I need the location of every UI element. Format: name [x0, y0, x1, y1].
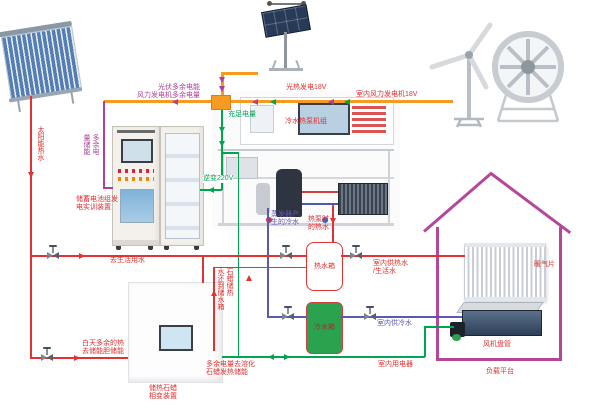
green-bottom-h: [222, 356, 425, 358]
collector-leg: [70, 92, 74, 104]
paraffin-return-v: [213, 267, 215, 351]
label-battery-cabinet: 储蓄电池组发 电实训装置: [76, 196, 122, 212]
paraffin-screen: [159, 325, 193, 351]
tracker-feed-v: [221, 72, 224, 96]
valve-cold-tank-inlet[interactable]: [281, 305, 295, 324]
cabinet-indicators: [118, 169, 154, 173]
bus-arrow-left: [270, 99, 276, 105]
control-cabinet: [112, 126, 160, 246]
valve-day-surplus[interactable]: [40, 346, 54, 365]
wind-tunnel-fan: [495, 34, 561, 121]
green-house-riser: [424, 326, 426, 357]
tracker-arrow-down: [219, 86, 225, 92]
tracker-arrow-down: [219, 77, 225, 83]
fan-coil-unit: [450, 298, 542, 340]
solar-flow-arrow: [28, 172, 34, 178]
battery-cabinet: [160, 126, 204, 246]
tracker-pole: [284, 32, 287, 68]
hp-pipe: [302, 191, 338, 193]
label-surplus-power: 光伏多余电能 风力发电机多余电量: [120, 84, 200, 100]
label-melt-paraffin: 多余电量去溶化 石蜡发热储能: [206, 361, 255, 377]
pv-tracker: [255, 2, 327, 76]
domestic-water-h: [30, 255, 307, 257]
house-floor: [436, 358, 562, 361]
dc-bus-line: [104, 100, 453, 103]
label-heat-pump: 冷水热泵机组: [285, 118, 327, 126]
tracker-sensor: [267, 1, 272, 6]
valve-hot-tank-outlet[interactable]: [349, 244, 363, 263]
bus-junction-box: [211, 95, 231, 110]
label-fan-coil: 风机盘管: [483, 341, 511, 349]
green-arrow-down: [219, 127, 225, 133]
paraffin-return-arrow: [246, 275, 252, 281]
paraffin-power-arrow: [268, 354, 274, 360]
green-inverter-v: [221, 152, 223, 190]
house-power-arrow: [284, 354, 290, 360]
cabinet-screen: [121, 139, 153, 163]
hot-water-tank: 热水箱: [306, 242, 343, 291]
wind-turbine-and-fan: [424, 5, 574, 133]
label-charge: 充足电量: [228, 111, 256, 119]
solar-hot-v: [30, 96, 32, 358]
house-roof-left: [423, 171, 493, 232]
bus-arrow-left: [328, 99, 334, 105]
heatpump-hot-arrow: [330, 218, 336, 224]
paraffin-feed-v: [202, 255, 204, 283]
cold-tank-label: 冷水箱: [314, 324, 335, 332]
label-inverter: 逆变220V: [203, 175, 233, 183]
label-load-platform: 负载平台: [486, 368, 514, 376]
label-surplus-storage: 多余电 量储能: [82, 134, 100, 164]
house-wall-left: [436, 227, 439, 361]
hp-bench-leg: [388, 151, 390, 225]
fan-coil-green-part: [452, 334, 461, 341]
label-evaporator-cold: 蒸发器产 生的冷水: [271, 211, 299, 227]
cabinet-vent: [117, 130, 155, 133]
green-house-h: [424, 326, 454, 328]
bus-arrow-left: [344, 99, 350, 105]
cold-water-tank: 冷水箱: [306, 302, 343, 354]
tracker-feed-h: [222, 72, 258, 75]
valve-cold-tank-outlet[interactable]: [363, 305, 377, 324]
label-indoor-hot: 室内供热水 /生活水: [373, 260, 408, 276]
collector-leg: [17, 100, 21, 112]
hp-heat-exchanger: [338, 183, 388, 215]
surplus-to-battery-v: [103, 101, 105, 188]
surplus-to-battery-h: [103, 187, 113, 189]
label-pv-tracker: 光热发电18V: [286, 84, 326, 92]
battery-cabinet-glass: [165, 133, 200, 239]
label-solar-hot-water: 太阳能热水: [36, 126, 45, 168]
cabinet-indicators: [118, 177, 154, 181]
hp-gauges: [352, 103, 386, 135]
label-heatpump-hot: 热泵时 的热水: [308, 216, 329, 232]
label-indoor-load: 室内用电器: [378, 361, 413, 369]
day-surplus-arrow: [74, 355, 80, 361]
label-paraffin-return: 石蜡储热 水还到储水箱: [216, 268, 234, 316]
valve-hot-tank-inlet[interactable]: [279, 244, 293, 263]
solar-collector: [0, 18, 88, 113]
hp-left-panel: [250, 105, 274, 133]
bus-arrow-left: [252, 99, 258, 105]
heatpump-hot-v: [332, 205, 334, 243]
evaporator-cold-v: [267, 208, 269, 317]
hp-compressor: [276, 169, 302, 217]
green-branch-h: [221, 152, 239, 154]
house-roof-right: [490, 172, 571, 234]
green-arrow-down: [219, 141, 225, 147]
label-indoor-cold: 室内供冷水: [377, 320, 412, 328]
label-domestic-water: 去生活用水: [110, 257, 145, 265]
label-paraffin-device: 储热石蜡 相变装置: [149, 385, 177, 401]
inverter-arrow: [208, 187, 214, 193]
hp-bench-shelf: [218, 223, 394, 226]
cabinet-panel: [120, 189, 154, 223]
wind-turbine: [432, 25, 490, 127]
fan-coil-body: [462, 310, 542, 336]
valve-domestic-water[interactable]: [46, 244, 60, 263]
system-diagram: 热水箱 冷水箱: [0, 0, 600, 419]
label-radiator: 暖气片: [534, 261, 555, 269]
cold-tank-right-h: [341, 316, 462, 318]
domestic-flow-arrow: [79, 253, 85, 259]
label-wind-generator: 室内风力发电机18V: [356, 91, 417, 99]
house-wall-right: [559, 227, 562, 361]
label-day-surplus: 白天多余的热 去储能胆储能: [82, 340, 124, 356]
hp-bench-rail: [218, 149, 394, 151]
cabinet-kick: [113, 240, 159, 245]
hot-tank-label: 热水箱: [314, 263, 335, 271]
radiator: [464, 243, 546, 301]
